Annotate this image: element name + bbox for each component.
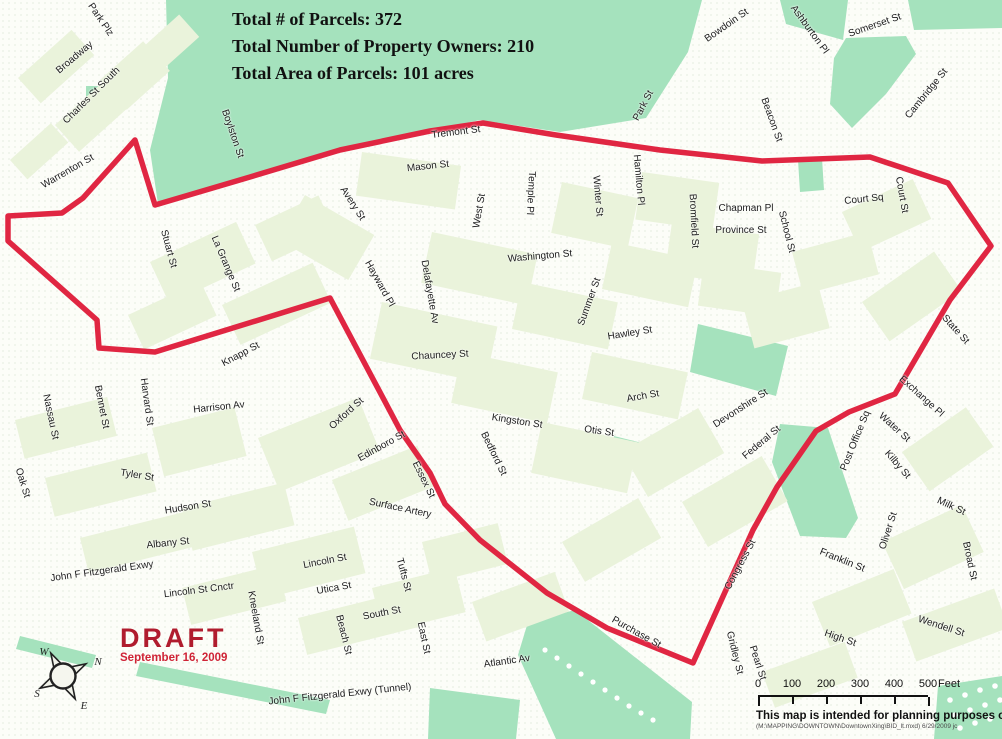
street-label: Water St xyxy=(876,411,911,444)
street-label: Mason St xyxy=(406,160,449,174)
street-label: Beacon St xyxy=(758,97,783,144)
street-label: Cambridge St xyxy=(904,67,950,121)
street-label: Temple Pl xyxy=(524,171,536,215)
street-label: Court St xyxy=(893,176,909,214)
draft-label: DRAFT xyxy=(120,624,227,652)
street-label: Arch St xyxy=(626,389,660,405)
stat-total-parcels: Total # of Parcels: 372 xyxy=(232,6,534,33)
file-path-note: (M:\MAPPING\DOWNTOWN\DowntownXing\BID_lt… xyxy=(756,723,1002,731)
street-label: Milk St xyxy=(935,496,966,518)
street-label: Hamilton Pl xyxy=(631,154,645,206)
street-label: Lincoln St xyxy=(302,553,347,571)
street-label: Congress St xyxy=(724,538,759,591)
street-label: Delafayette Av xyxy=(418,259,439,324)
street-label: Gridley St xyxy=(724,630,744,675)
street-label: Oxford St xyxy=(328,396,366,432)
street-label: Tyler St xyxy=(119,468,154,483)
street-label: Hayward Pl xyxy=(362,259,396,309)
street-label: High St xyxy=(823,629,857,649)
scale-tick-mark xyxy=(826,697,828,704)
scale-tick-label: 100 xyxy=(783,678,801,690)
street-label: Bedford St xyxy=(478,431,508,478)
street-label: Winter St xyxy=(590,175,604,217)
street-label: Franklin St xyxy=(818,547,866,574)
scale-tick-label: 200 xyxy=(817,678,835,690)
street-label: Harvard St xyxy=(138,378,155,427)
street-label: Stuart St xyxy=(158,229,178,269)
street-label: Kilby St xyxy=(882,449,912,481)
street-label: School St xyxy=(776,210,796,254)
scale-tick-mark xyxy=(894,697,896,704)
street-label: Warrenton St xyxy=(40,153,96,191)
scale-tick-label: 0 xyxy=(755,678,761,690)
street-label: Tufts St xyxy=(394,557,412,593)
street-label: South St xyxy=(362,605,402,622)
street-label: Court Sq xyxy=(844,193,884,207)
street-label: State St xyxy=(939,313,970,346)
street-label: Somerset St xyxy=(847,12,902,39)
street-label: Albany St xyxy=(146,537,190,551)
street-label: John F Fitzgerald Exwy xyxy=(50,560,154,584)
street-label: Broadway xyxy=(55,40,95,76)
scale-bar-unit: Feet xyxy=(938,678,960,690)
street-label: Bromfield St xyxy=(687,194,700,249)
street-label: Bowdoin St xyxy=(703,7,750,44)
scale-tick-mark xyxy=(860,697,862,704)
street-label: Edinboro St xyxy=(357,430,408,464)
street-label: Chauncey St xyxy=(411,350,469,363)
street-label: Oliver St xyxy=(878,511,899,551)
street-label: Knapp St xyxy=(220,341,261,369)
street-label: Hudson St xyxy=(164,499,212,516)
map-canvas: N W S E Park PlzBroadwayCharles St South… xyxy=(0,0,1002,739)
street-label: Federal St xyxy=(741,424,783,461)
street-label: Broad St xyxy=(960,541,978,581)
street-label: Atlantic Av xyxy=(483,654,530,670)
street-label: Devonshire St xyxy=(712,388,770,431)
street-label: Hawley St xyxy=(607,326,653,343)
scale-tick-mark xyxy=(928,697,930,706)
street-label: Exchange Pl xyxy=(897,374,945,419)
street-label: Chapman Pl xyxy=(718,204,773,214)
disclaimer-text: This map is intended for planning purpos… xyxy=(756,710,1002,723)
street-label: Utica St xyxy=(316,581,352,597)
street-label: Avery St xyxy=(338,186,367,223)
street-label: Pearl St xyxy=(747,645,768,682)
street-label: Kingston St xyxy=(491,413,543,431)
scale-tick-mark xyxy=(758,697,760,706)
draft-watermark: DRAFT September 16, 2009 xyxy=(120,624,227,665)
street-label: Nassau St xyxy=(40,393,59,440)
scale-bar-ruler xyxy=(758,695,928,707)
street-label: Beach St xyxy=(333,614,353,656)
street-label: West St xyxy=(472,193,488,229)
stat-total-owners: Total Number of Property Owners: 210 xyxy=(232,33,534,60)
street-label: Essex St xyxy=(410,460,436,500)
street-label: Harrison Av xyxy=(193,400,245,415)
street-label: Oak St xyxy=(13,467,32,499)
scale-bar: 0100200300400500 Feet xyxy=(756,678,1002,712)
street-label: East St xyxy=(415,621,431,655)
street-label: Washington St xyxy=(507,249,572,265)
street-label: Post Office Sq xyxy=(839,410,872,473)
street-label: Purchase St xyxy=(610,615,663,650)
scale-tick-label: 400 xyxy=(885,678,903,690)
scale-tick-label: 500 xyxy=(919,678,937,690)
street-label: Wendell St xyxy=(917,615,966,639)
map-footer: This map is intended for planning purpos… xyxy=(756,710,1002,731)
street-label: Otis St xyxy=(583,425,614,439)
street-label: Province St xyxy=(715,226,766,236)
stats-panel: Total # of Parcels: 372 Total Number of … xyxy=(232,6,534,87)
street-label: Lincoln St Cnctr xyxy=(163,582,234,601)
stat-total-area: Total Area of Parcels: 101 acres xyxy=(232,60,534,87)
scale-tick-mark xyxy=(792,697,794,704)
street-label: John F Fitzgerald Exwy (Tunnel) xyxy=(268,683,412,708)
street-label: Summer St xyxy=(577,277,604,327)
street-label: Bennet St xyxy=(92,384,110,429)
scale-tick-label: 300 xyxy=(851,678,869,690)
street-label: Surface Artery xyxy=(368,498,432,521)
street-label: Charles St South xyxy=(62,66,123,127)
street-label: Ashburton Pl xyxy=(788,4,830,56)
street-label: Park St xyxy=(632,89,656,123)
street-label: Kneeland St xyxy=(245,590,264,645)
street-label: Tremont St xyxy=(431,125,481,141)
street-label: Park Plz xyxy=(85,2,114,38)
street-label: La Grange St xyxy=(209,235,241,294)
street-label: Boylston St xyxy=(219,108,245,159)
draft-date: September 16, 2009 xyxy=(120,652,227,665)
